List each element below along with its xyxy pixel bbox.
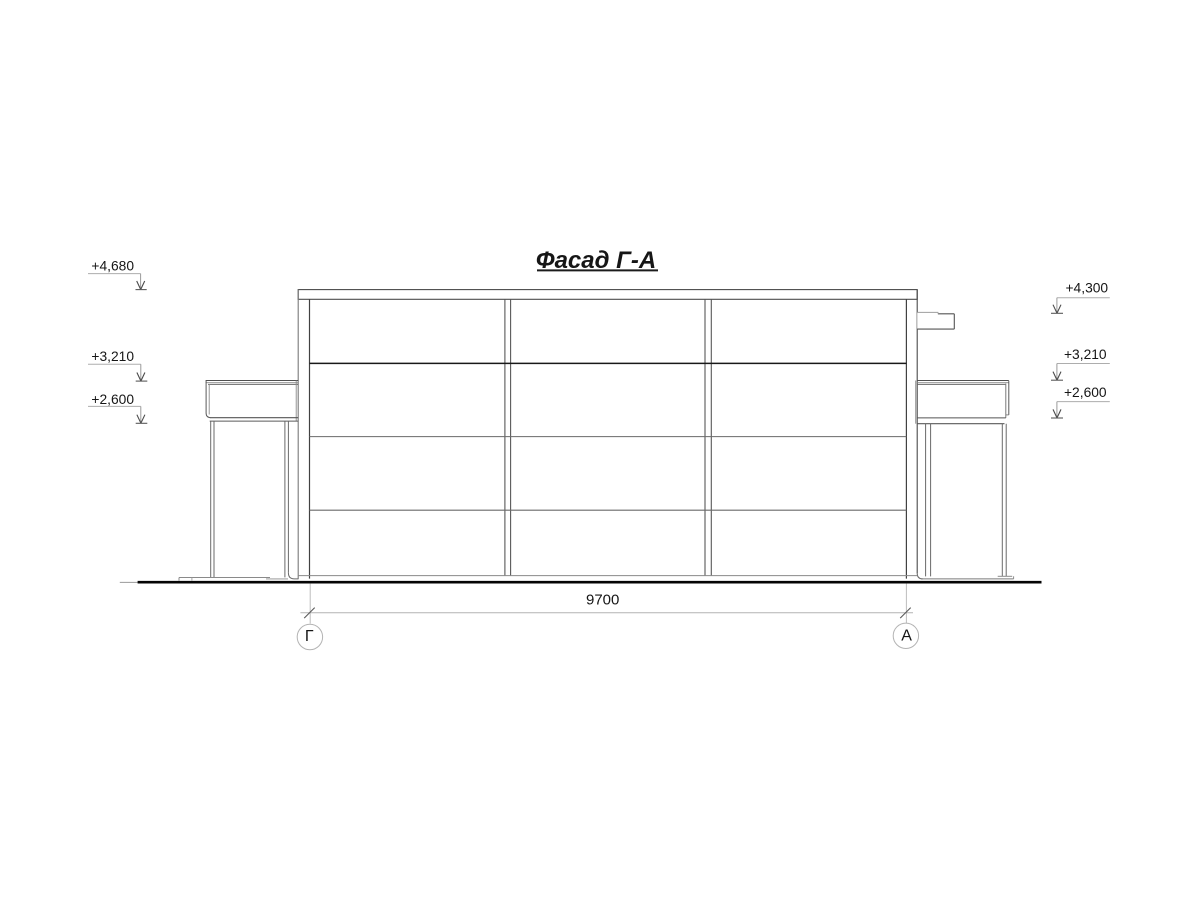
svg-text:+4,680: +4,680 [91, 259, 134, 274]
svg-text:А: А [901, 627, 912, 644]
svg-text:+2,600: +2,600 [1064, 385, 1107, 400]
svg-text:+3,210: +3,210 [1064, 347, 1107, 362]
svg-text:Г: Г [305, 628, 314, 645]
svg-text:+2,600: +2,600 [91, 392, 134, 407]
svg-text:+4,300: +4,300 [1066, 280, 1109, 295]
svg-text:9700: 9700 [586, 591, 619, 608]
svg-text:+3,210: +3,210 [91, 349, 134, 364]
